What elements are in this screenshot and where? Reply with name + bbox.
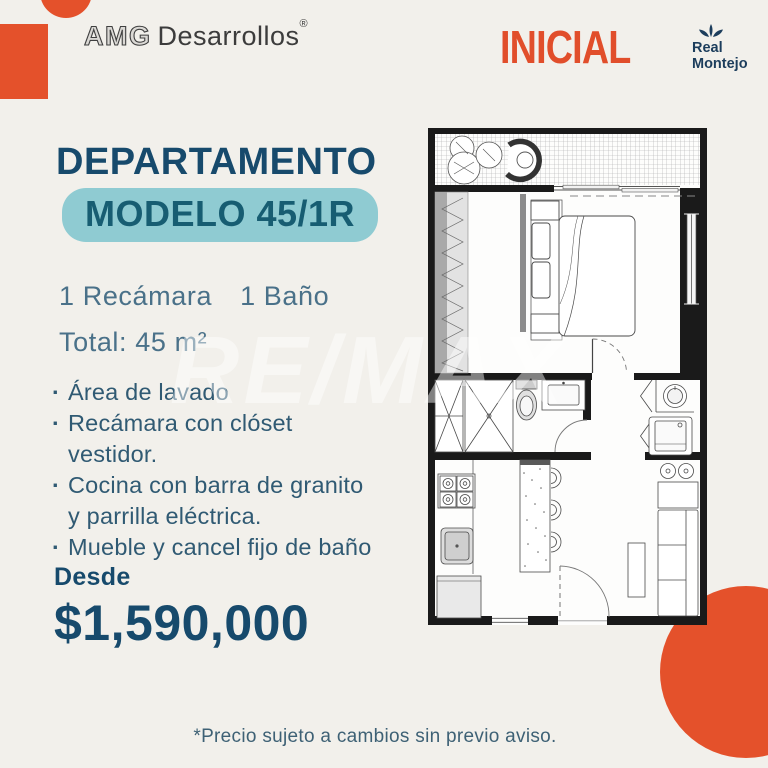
granite-island-icon — [520, 460, 550, 572]
console-icon — [658, 482, 698, 508]
listing-title: DEPARTAMENTO — [56, 141, 377, 184]
coffee-table-icon — [628, 543, 645, 597]
bathrooms-count: 1 Baño — [240, 281, 329, 312]
feature-text: Área de lavado — [68, 379, 229, 405]
feature-item: Mueble y cancel fijo de baño — [52, 532, 371, 563]
location-line2: Montejo — [692, 56, 768, 72]
project-brand: INICIAL Real Montejo — [500, 24, 659, 70]
double-bed-icon — [520, 194, 635, 340]
bathroom-vanity-icon — [542, 380, 585, 410]
feature-item: Recámara con clóset vestidor. — [52, 408, 371, 470]
location-line1: Real — [692, 40, 768, 56]
feature-text: Mueble y cancel fijo de baño — [68, 534, 371, 560]
bath-closet — [435, 380, 463, 452]
model-badge: MODELO 45/1R — [62, 188, 378, 242]
location-brand: Real Montejo — [692, 24, 768, 72]
orange-semicircle-decoration — [40, 0, 92, 18]
toilet-icon — [516, 380, 537, 420]
price-value: $1,590,000 — [54, 594, 309, 652]
orange-square-decoration — [0, 24, 48, 99]
floor-plan — [428, 128, 707, 625]
developer-logo-amg: AMG — [84, 21, 152, 51]
feature-text: Recámara con clóset — [68, 410, 293, 436]
price-block: Desde $1,590,000 — [54, 563, 309, 652]
terrace — [435, 134, 700, 185]
feature-text: y parrilla eléctrica. — [68, 501, 371, 532]
price-disclaimer: *Precio sujeto a cambios sin previo avis… — [0, 726, 750, 748]
washer-icon — [649, 417, 692, 455]
sofa-icon — [658, 510, 698, 616]
specs: 1 Recámara 1 Baño Total: 45 m² — [59, 281, 329, 358]
refrigerator-icon — [437, 576, 481, 618]
feature-text: Cocina con barra de granito — [68, 472, 363, 498]
developer-logo: AMGDesarrollos® — [84, 18, 308, 52]
feature-list: Área de lavado Recámara con clóset vesti… — [52, 377, 371, 563]
registered-mark: ® — [300, 18, 309, 30]
bedrooms-count: 1 Recámara — [59, 281, 212, 312]
hanging-chair-icon — [507, 141, 539, 179]
model-badge-label: MODELO 45/1R — [85, 193, 355, 234]
stove-icon — [438, 474, 475, 508]
feature-item: Cocina con barra de granito y parrilla e… — [52, 470, 371, 532]
shower-icon — [465, 380, 513, 452]
closet-vestidor — [435, 192, 468, 373]
laundry-sink-icon — [664, 385, 687, 408]
flyer-page: AMGDesarrollos® INICIAL Real Montejo DEP… — [0, 0, 768, 768]
kitchen-sink-icon — [441, 528, 473, 564]
leaf-icon — [698, 24, 724, 38]
total-area: Total: 45 m² — [59, 327, 329, 358]
price-label: Desde — [54, 563, 309, 592]
feature-item: Área de lavado — [52, 377, 371, 408]
developer-logo-name: Desarrollos — [158, 21, 300, 51]
feature-text: vestidor. — [68, 439, 371, 470]
project-title: INICIAL — [500, 24, 630, 70]
